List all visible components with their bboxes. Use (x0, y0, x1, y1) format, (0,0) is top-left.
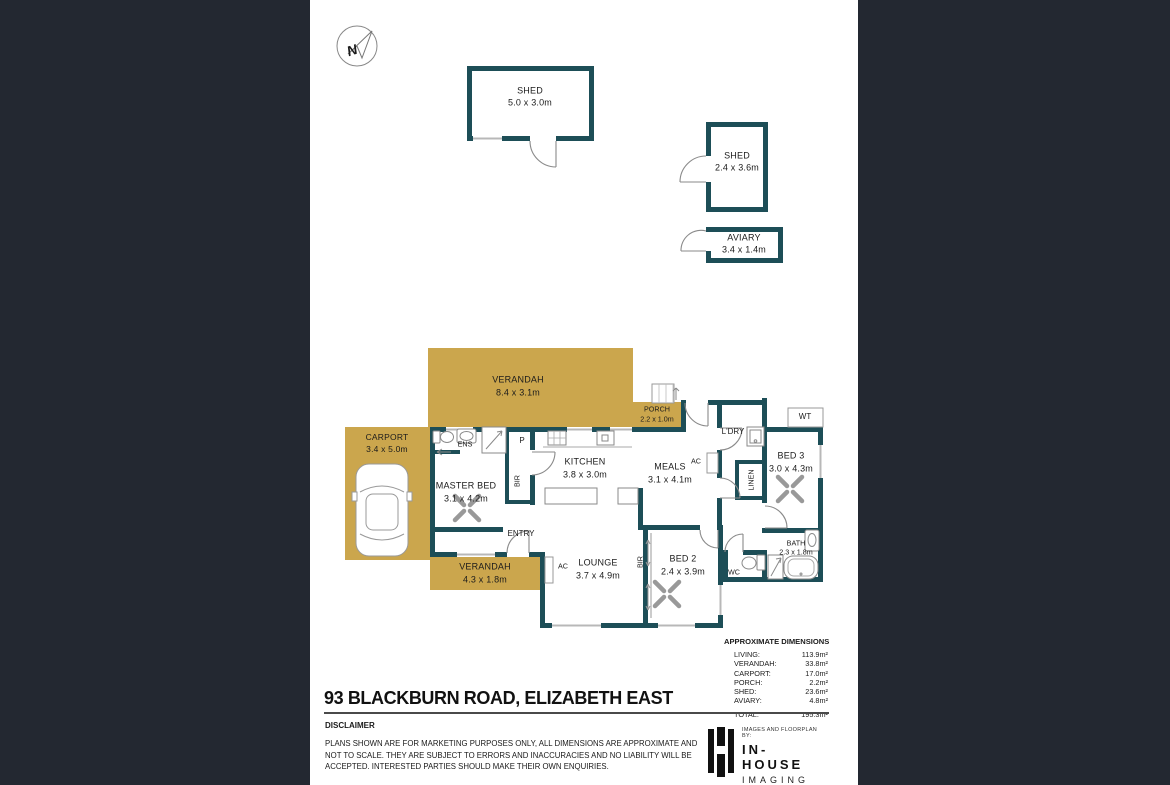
disclaimer-title: DISCLAIMER (325, 721, 697, 730)
room-label-porch: PORCH (644, 405, 670, 412)
room-label-master-bed: MASTER BED (436, 482, 497, 491)
room-label-kitchen: KITCHEN (565, 458, 606, 467)
room-label-verandah-bottom: VERANDAH (459, 563, 511, 572)
room-dims-porch: 2.2 x 1.0m (640, 415, 674, 422)
aviary-label: AVIARY (727, 234, 760, 243)
floor-plan-page: N SHED 5.0 x 3.0m SHED 2.4 x 3.6m AVIARY… (310, 0, 858, 785)
summary-row-shed: SHED:23.6m² (724, 687, 828, 696)
shed-large-label: SHED (517, 87, 543, 96)
disclaimer-line-1: PLANS SHOWN ARE FOR MARKETING PURPOSES O… (325, 738, 697, 750)
room-dims-kitchen: 3.8 x 3.0m (563, 471, 607, 480)
branding-name: IN-HOUSE (742, 742, 821, 772)
summary-row-verandah: VERANDAH:33.8m² (724, 659, 828, 668)
aviary-dims: 3.4 x 1.4m (722, 246, 766, 255)
divider-line (324, 712, 829, 714)
walls (430, 66, 823, 628)
canvas-background: N SHED 5.0 x 3.0m SHED 2.4 x 3.6m AVIARY… (0, 0, 1170, 785)
room-dims-verandah-top: 8.4 x 3.1m (496, 389, 540, 398)
branding-text: IMAGES AND FLOORPLAN BY: IN-HOUSE IMAGIN… (742, 727, 821, 785)
dimensions-summary-title: APPROXIMATE DIMENSIONS (724, 637, 828, 646)
room-label-linen: LINEN (747, 469, 754, 490)
shed-small-label: SHED (724, 152, 750, 161)
room-dims-bath: 2.3 x 1.8m (779, 548, 813, 555)
shed-large-dims: 5.0 x 3.0m (508, 99, 552, 108)
room-dims-meals: 3.1 x 4.1m (648, 476, 692, 485)
summary-row-living: LIVING:113.9m² (724, 650, 828, 659)
room-label-bed3: BED 3 (777, 452, 804, 461)
room-label-lounge: LOUNGE (578, 559, 617, 568)
disclaimer: DISCLAIMER PLANS SHOWN ARE FOR MARKETING… (325, 721, 697, 773)
shed-small-dims: 2.4 x 3.6m (715, 164, 759, 173)
room-label-carport: CARPORT (366, 433, 409, 442)
room-label-bir-bed2: BIR (636, 556, 643, 568)
compass-icon (337, 26, 377, 66)
room-dims-bed2: 2.4 x 3.9m (661, 568, 705, 577)
room-label-entry: ENTRY (508, 530, 535, 538)
dimensions-summary: APPROXIMATE DIMENSIONS LIVING:113.9m² VE… (724, 637, 828, 719)
room-label-verandah-top: VERANDAH (492, 376, 544, 385)
inhouse-logo-icon (708, 727, 736, 777)
car-icon (352, 464, 412, 556)
room-label-pantry: P (519, 437, 524, 445)
room-dims-lounge: 3.7 x 4.9m (576, 572, 620, 581)
room-label-meals: MEALS (654, 463, 686, 472)
room-label-ldry: L'DRY (722, 428, 745, 436)
property-address: 93 BLACKBURN ROAD, ELIZABETH EAST (324, 688, 673, 709)
room-label-bath: BATH (787, 539, 806, 546)
disclaimer-line-3: ACCEPTED. INTERESTED PARTIES SHOULD MAKE… (325, 761, 697, 773)
room-label-ens: ENS (458, 440, 473, 447)
summary-row-aviary: AVIARY:4.8m² (724, 696, 828, 705)
room-label-wt: WT (799, 413, 811, 421)
branding-name2: IMAGING (742, 775, 821, 785)
room-dims-master-bed: 3.1 x 4.2m (444, 495, 488, 504)
summary-row-carport: CARPORT:17.0m² (724, 669, 828, 678)
disclaimer-line-2: NOT TO SCALE. THEY ARE SUBJECT TO ERRORS… (325, 750, 697, 762)
room-dims-bed3: 3.0 x 4.3m (769, 465, 813, 474)
branding-tagline: IMAGES AND FLOORPLAN BY: (742, 727, 821, 739)
room-label-ac-lounge: AC (558, 562, 568, 569)
room-label-wc: WC (728, 568, 740, 575)
room-label-bed2: BED 2 (669, 555, 696, 564)
room-label-bir-master: BIR (513, 475, 520, 487)
room-dims-carport: 3.4 x 5.0m (366, 445, 408, 454)
room-label-ac-meals: AC (691, 457, 701, 464)
room-dims-verandah-bottom: 4.3 x 1.8m (463, 576, 507, 585)
summary-row-porch: PORCH:2.2m² (724, 678, 828, 687)
